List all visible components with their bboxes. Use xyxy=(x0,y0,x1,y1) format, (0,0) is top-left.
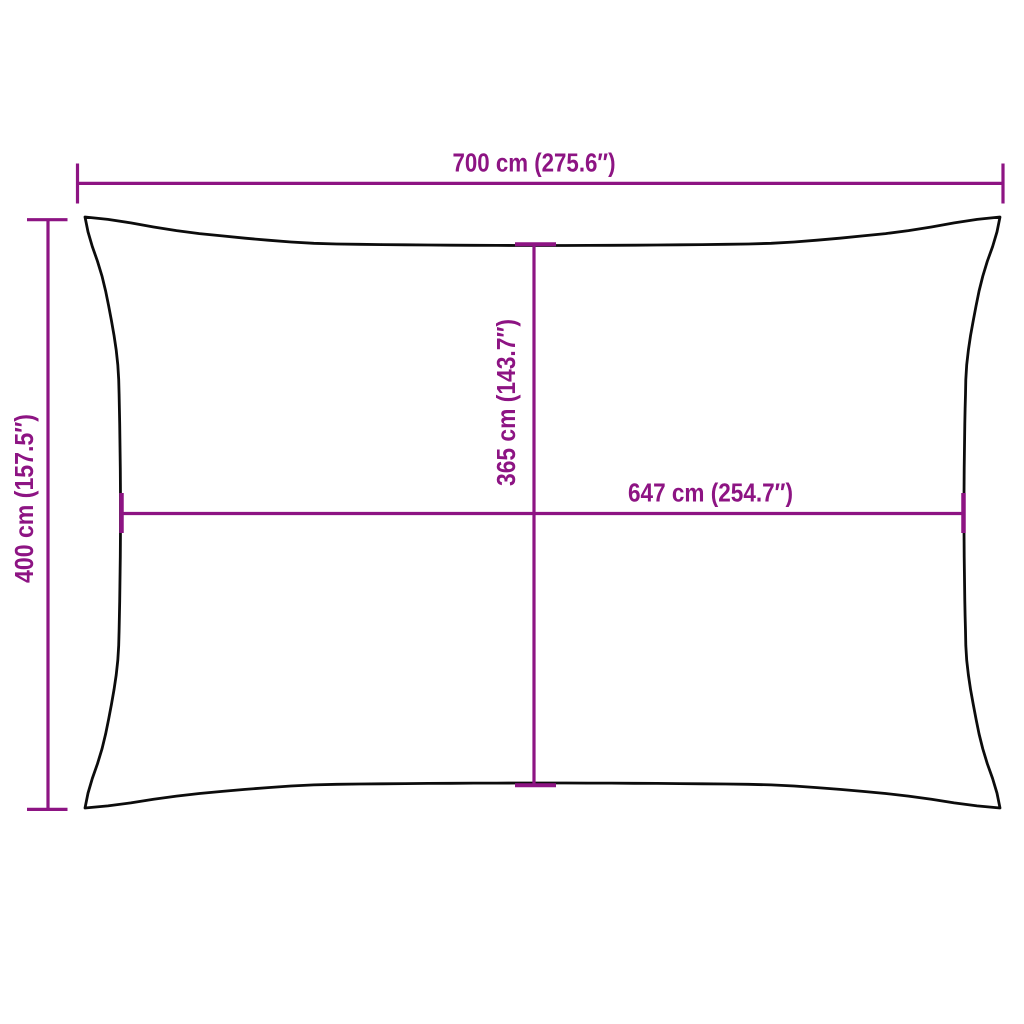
svg-text:365 cm (143.7″): 365 cm (143.7″) xyxy=(491,319,521,486)
svg-text:647 cm (254.7″): 647 cm (254.7″) xyxy=(628,477,793,507)
svg-text:400 cm (157.5″): 400 cm (157.5″) xyxy=(9,414,39,583)
svg-text:700 cm (275.6″): 700 cm (275.6″) xyxy=(453,147,616,177)
